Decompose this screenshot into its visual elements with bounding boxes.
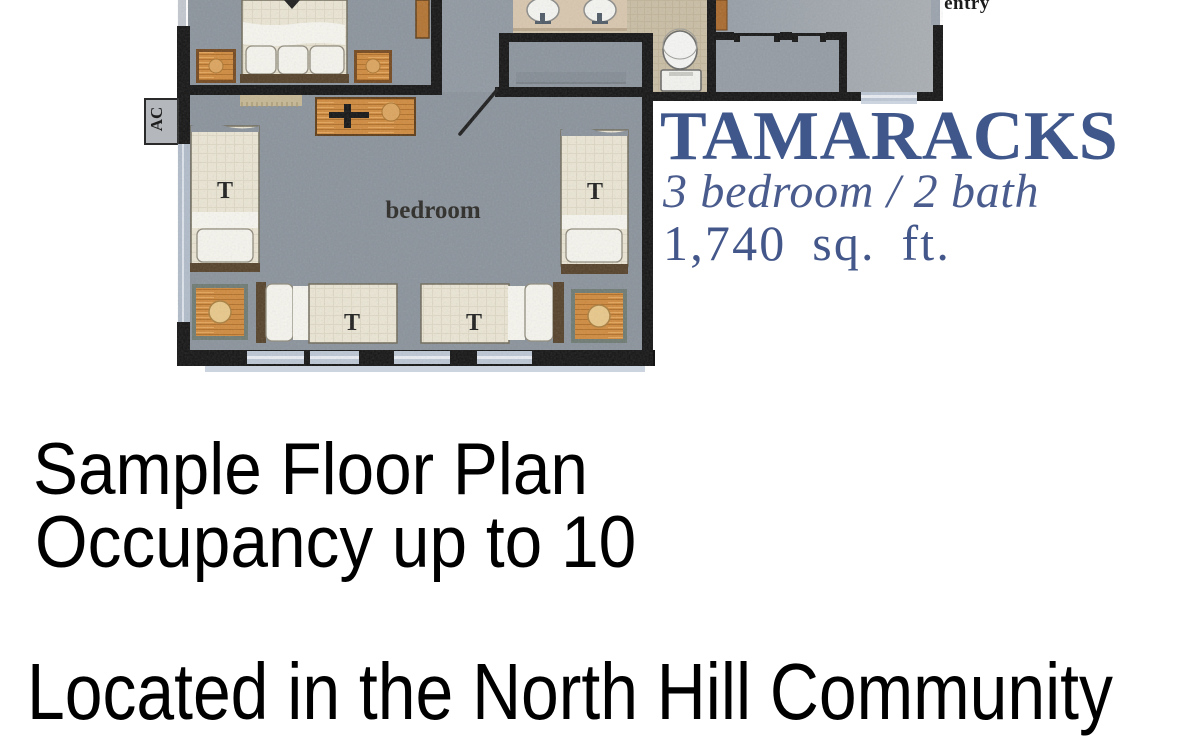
svg-text:AC: AC [147,107,166,132]
svg-text:entry: entry [944,0,990,14]
